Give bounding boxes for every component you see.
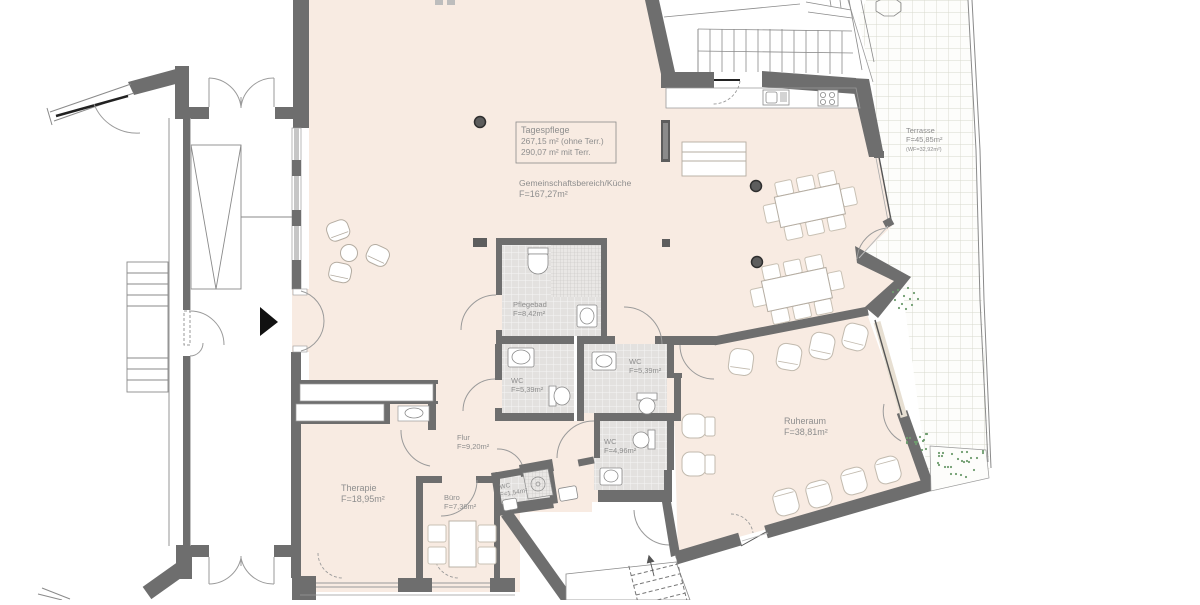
svg-text:267,15 m² (ohne Terr.): 267,15 m² (ohne Terr.) bbox=[521, 136, 604, 146]
svg-text:F=4,96m²: F=4,96m² bbox=[604, 446, 637, 455]
svg-text:Therapie: Therapie bbox=[341, 483, 377, 493]
svg-text:WC: WC bbox=[511, 376, 524, 385]
svg-text:WC: WC bbox=[629, 357, 642, 366]
svg-text:Terrasse: Terrasse bbox=[906, 126, 935, 135]
svg-text:Flur: Flur bbox=[457, 433, 470, 442]
svg-text:Pflegebad: Pflegebad bbox=[513, 300, 547, 309]
svg-text:F=5,39m²: F=5,39m² bbox=[629, 366, 662, 375]
svg-text:F=18,95m²: F=18,95m² bbox=[341, 494, 385, 504]
svg-text:Büro: Büro bbox=[444, 493, 460, 502]
svg-text:290,07 m² mit Terr.: 290,07 m² mit Terr. bbox=[521, 147, 591, 157]
svg-text:F=38,81m²: F=38,81m² bbox=[784, 427, 828, 437]
svg-text:WC: WC bbox=[604, 437, 617, 446]
svg-text:(WF=32,92m²): (WF=32,92m²) bbox=[906, 147, 942, 153]
svg-text:F=7,36m²: F=7,36m² bbox=[444, 502, 477, 511]
svg-text:F=45,85m²: F=45,85m² bbox=[906, 135, 943, 144]
svg-text:F=8,42m²: F=8,42m² bbox=[513, 309, 546, 318]
svg-text:Gemeinschaftsbereich/Küche: Gemeinschaftsbereich/Küche bbox=[519, 178, 631, 188]
svg-text:Tagespflege: Tagespflege bbox=[521, 125, 570, 135]
svg-text:F=9,20m²: F=9,20m² bbox=[457, 442, 490, 451]
svg-text:Ruheraum: Ruheraum bbox=[784, 416, 826, 426]
svg-text:F=167,27m²: F=167,27m² bbox=[519, 189, 568, 199]
svg-text:F=5,39m²: F=5,39m² bbox=[511, 385, 544, 394]
